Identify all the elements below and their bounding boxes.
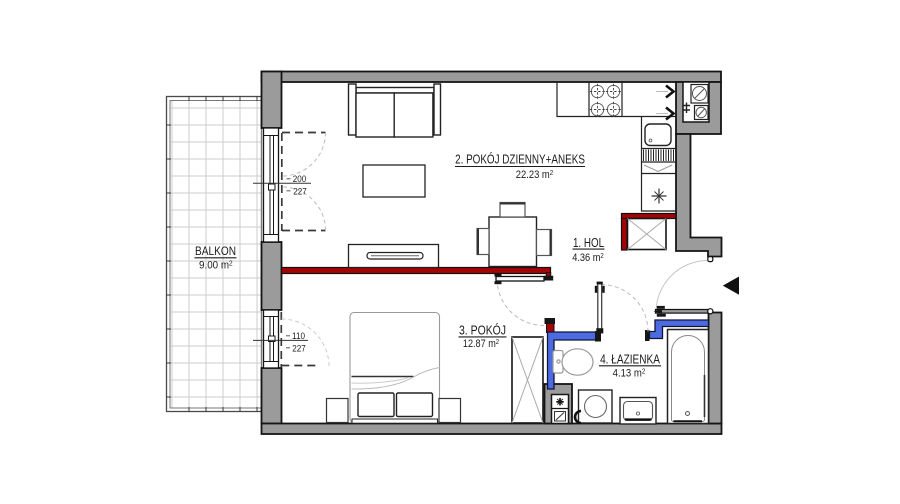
svg-text:4.13 m2: 4.13 m2 — [613, 367, 646, 380]
svg-text:2. POKÓJ DZIENNY+ANEKS: 2. POKÓJ DZIENNY+ANEKS — [455, 152, 585, 166]
svg-text:1. HOL: 1. HOL — [573, 237, 604, 250]
svg-text:BALKON: BALKON — [195, 245, 236, 258]
svg-text:227: 227 — [292, 343, 306, 354]
svg-text:227: 227 — [293, 186, 307, 197]
svg-text:4. ŁAZIENKA: 4. ŁAZIENKA — [600, 353, 660, 366]
svg-text:200: 200 — [293, 174, 307, 185]
svg-text:4.36 m2: 4.36 m2 — [572, 252, 604, 264]
svg-text:9.00 m2: 9.00 m2 — [199, 259, 233, 272]
svg-text:3. POKÓJ: 3. POKÓJ — [459, 323, 506, 337]
svg-text:12.87 m2: 12.87 m2 — [463, 338, 499, 350]
svg-text:22.23 m2: 22.23 m2 — [516, 169, 554, 181]
svg-text:110: 110 — [292, 331, 305, 342]
